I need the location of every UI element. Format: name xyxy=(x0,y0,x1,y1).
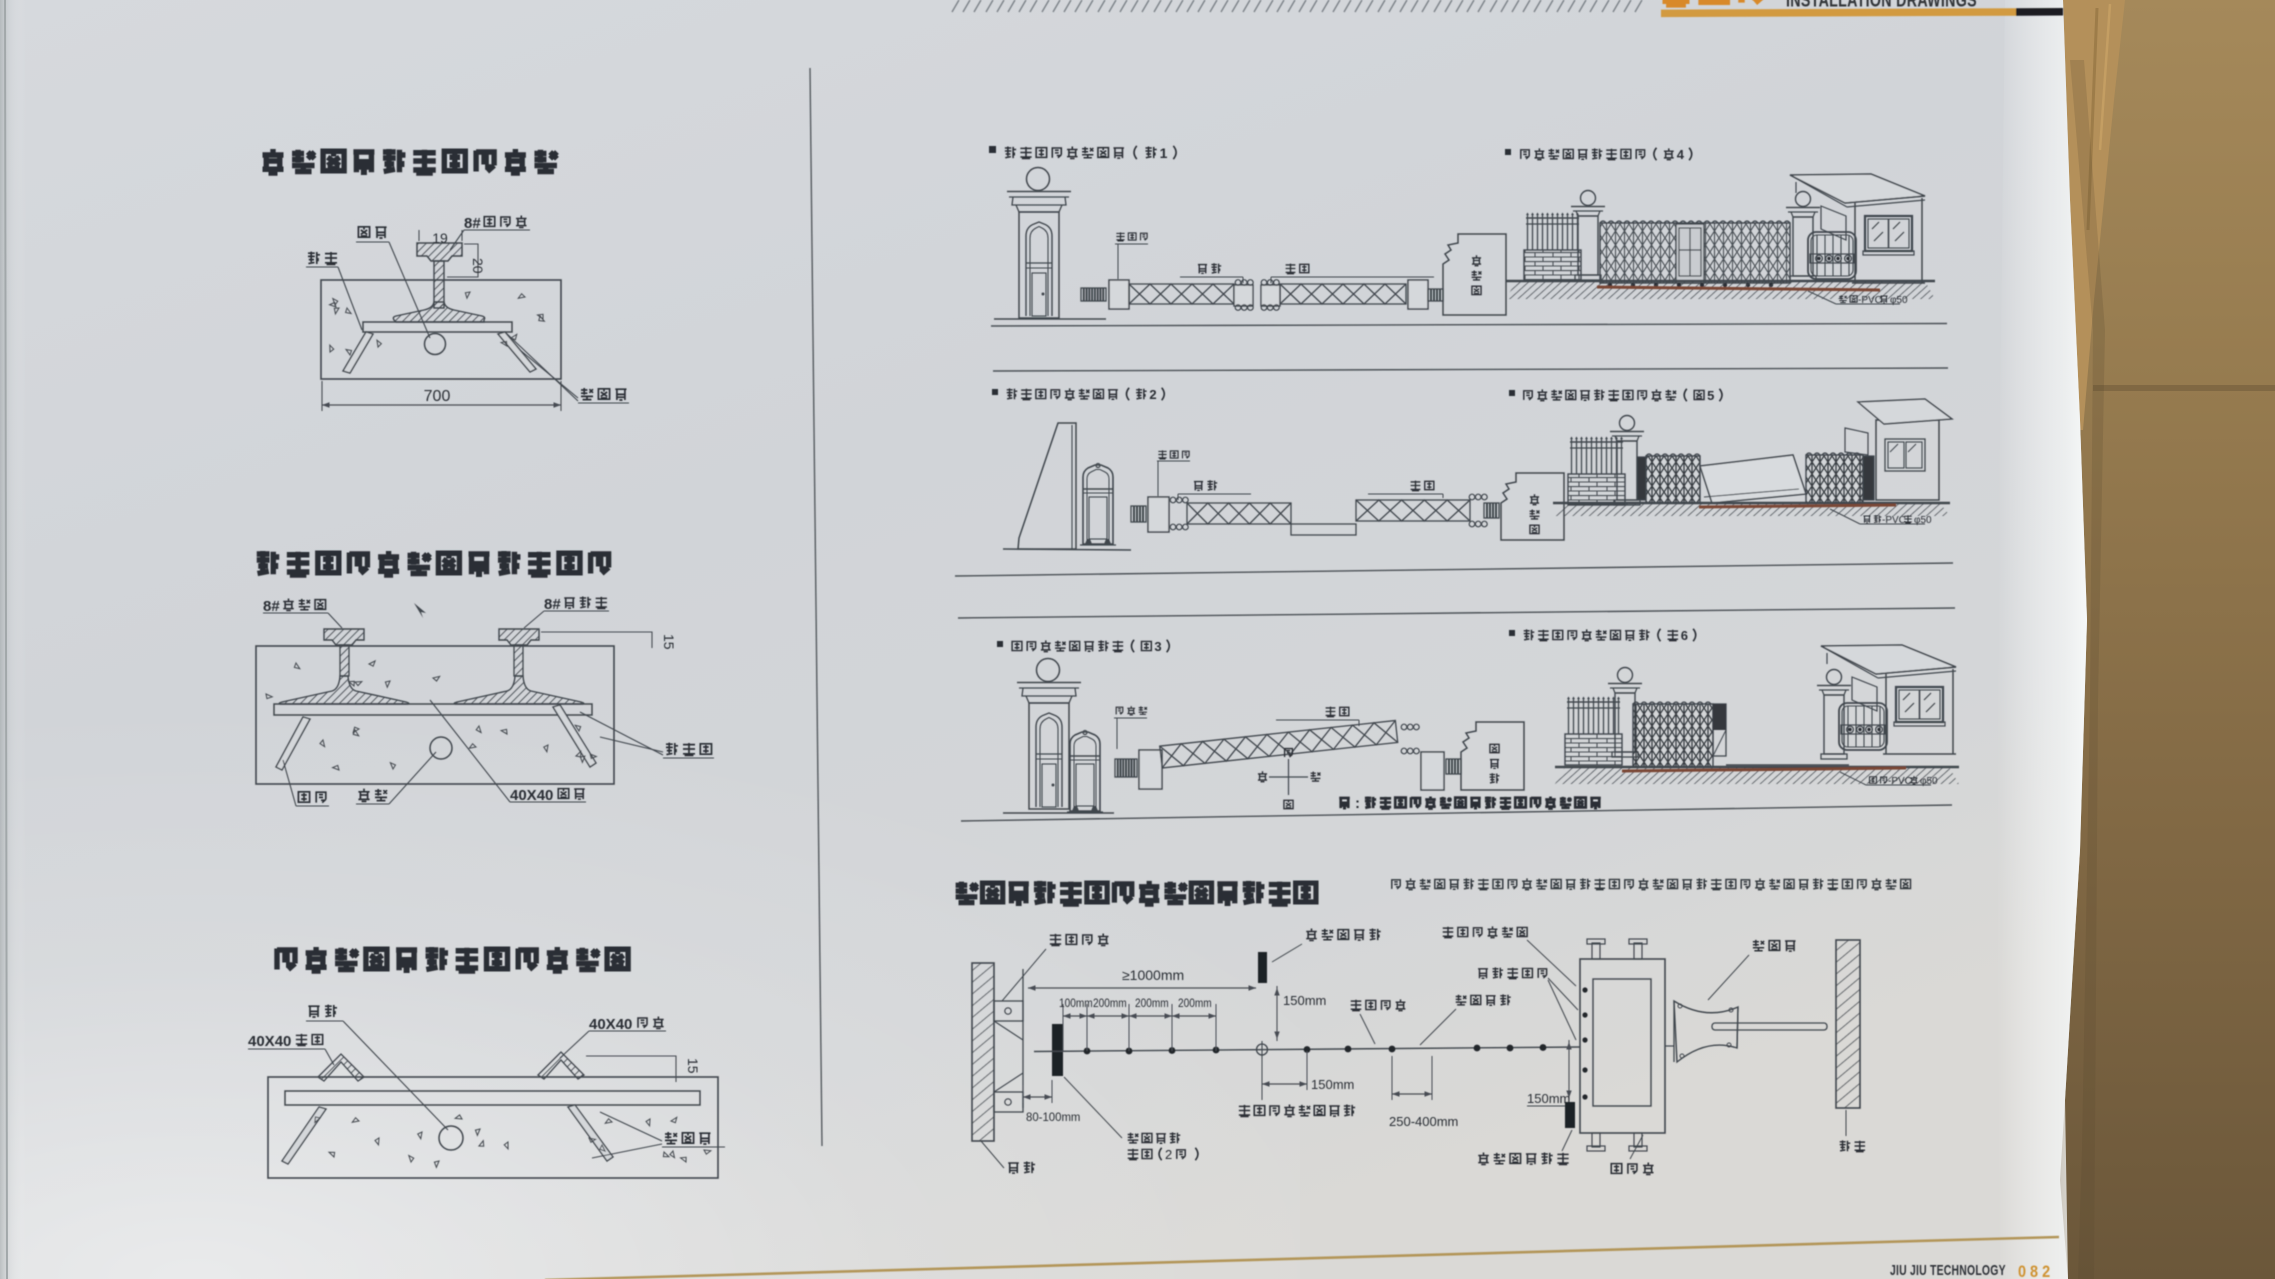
svg-text:40X40: 40X40 xyxy=(248,1033,291,1050)
svg-text:20: 20 xyxy=(470,258,486,274)
svg-text:15: 15 xyxy=(685,1058,701,1074)
svg-text:200mm: 200mm xyxy=(1093,997,1127,1010)
svg-text:150mm: 150mm xyxy=(1283,993,1326,1008)
svg-text:3: 3 xyxy=(1154,639,1161,654)
svg-text:0 8 2: 0 8 2 xyxy=(2018,1263,2050,1279)
svg-text:≥1000mm: ≥1000mm xyxy=(1122,967,1184,983)
svg-text::: : xyxy=(1355,795,1360,812)
svg-text:200mm: 200mm xyxy=(1178,997,1212,1010)
svg-text:φ50: φ50 xyxy=(1914,515,1932,526)
svg-text:200mm: 200mm xyxy=(1135,997,1169,1010)
svg-text:150mm: 150mm xyxy=(1311,1077,1354,1092)
svg-text:19: 19 xyxy=(432,230,448,246)
svg-text:700: 700 xyxy=(424,388,451,405)
svg-text:250-400mm: 250-400mm xyxy=(1389,1114,1458,1129)
svg-text:φ50: φ50 xyxy=(1890,295,1908,306)
svg-text:2: 2 xyxy=(1149,387,1156,402)
svg-text:150mm: 150mm xyxy=(1527,1091,1570,1106)
svg-text:6: 6 xyxy=(1681,628,1688,643)
svg-text:1: 1 xyxy=(1160,145,1168,161)
svg-text:JIU JIU TECHNOLOGY: JIU JIU TECHNOLOGY xyxy=(1890,1262,2006,1278)
svg-text:2: 2 xyxy=(1165,1147,1172,1162)
svg-text:80-100mm: 80-100mm xyxy=(1026,1111,1080,1124)
svg-text:100mm: 100mm xyxy=(1059,997,1093,1010)
svg-text:-PVC: -PVC xyxy=(1858,295,1882,306)
svg-text:5: 5 xyxy=(1707,388,1714,403)
svg-text:4: 4 xyxy=(1677,147,1685,162)
svg-text:15: 15 xyxy=(661,634,677,650)
svg-text:φ50: φ50 xyxy=(1920,776,1938,787)
svg-text:-PVC: -PVC xyxy=(1882,515,1906,526)
svg-text:-PVC: -PVC xyxy=(1888,776,1912,787)
